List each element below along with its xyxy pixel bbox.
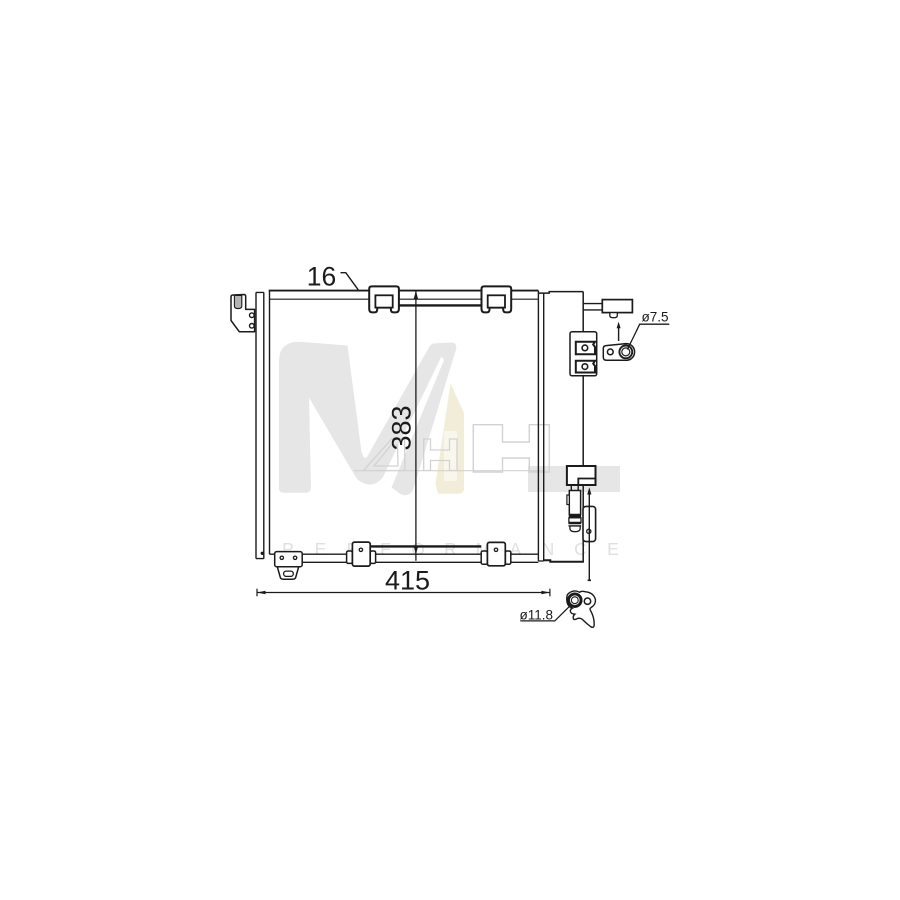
svg-text:E: E bbox=[607, 539, 619, 559]
svg-text:ø7.5: ø7.5 bbox=[642, 310, 669, 325]
svg-text:F: F bbox=[380, 539, 391, 559]
svg-text:415: 415 bbox=[385, 566, 430, 596]
svg-text:ø11.8: ø11.8 bbox=[520, 607, 554, 622]
svg-text:R: R bbox=[444, 539, 457, 559]
svg-text:383: 383 bbox=[387, 405, 417, 450]
svg-text:O: O bbox=[411, 539, 425, 559]
svg-text:16: 16 bbox=[307, 262, 336, 292]
svg-text:E: E bbox=[315, 539, 327, 559]
